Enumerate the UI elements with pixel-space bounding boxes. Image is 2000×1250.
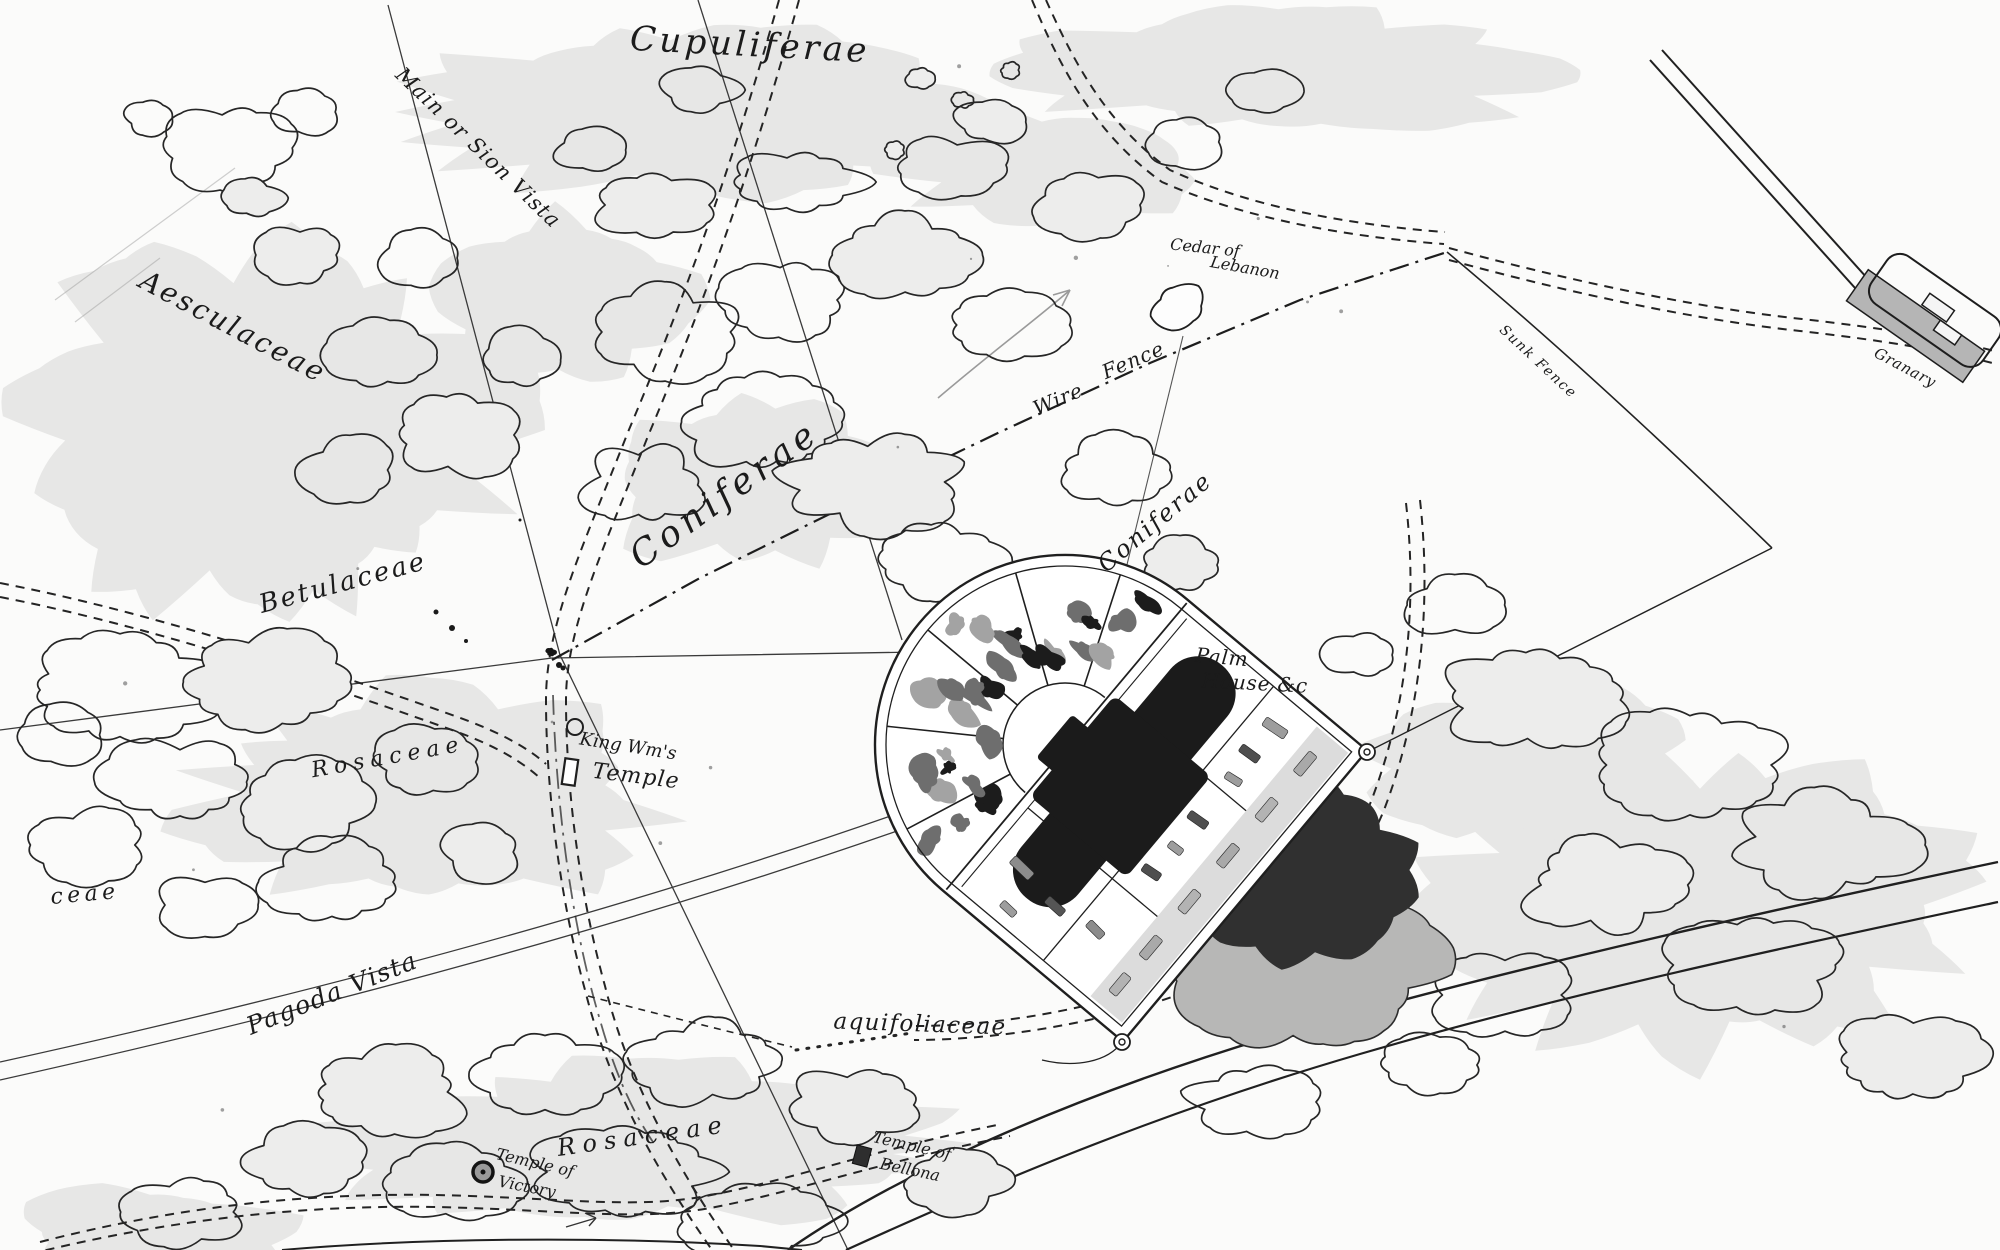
- cedar-of-lebanon-tree: [1151, 284, 1203, 330]
- ink-specks-shape: [970, 258, 972, 260]
- map-drawing: [0, 0, 2000, 1250]
- watercolor-washes-shape: [989, 5, 1580, 131]
- tree-clumps-shape: [28, 806, 142, 887]
- ink-specks-shape: [192, 868, 195, 871]
- tree-clumps-shape: [829, 210, 983, 298]
- ink-specks-shape: [658, 841, 662, 845]
- gate-pier-south-shape: [1114, 1034, 1130, 1050]
- tree-clumps-shape: [159, 878, 258, 939]
- tree-clumps-shape: [1061, 430, 1172, 506]
- ink-specks-shape: [1074, 256, 1078, 260]
- dotted-path: [796, 1033, 912, 1050]
- gate-pier-east: [1359, 744, 1375, 760]
- gate-pier-south: [1114, 1034, 1130, 1050]
- tree-clumps-shape: [952, 288, 1072, 361]
- temple-of-victory-marker-shape: [481, 1170, 486, 1175]
- king-wms-temple-marker: [562, 758, 578, 786]
- tree-clumps-shape: [1381, 1032, 1480, 1095]
- ink-specks-shape: [1167, 265, 1169, 267]
- tree-clumps-shape: [17, 702, 101, 766]
- ink-specks-shape: [1782, 1025, 1785, 1028]
- tree-clumps-shape: [1181, 1065, 1321, 1138]
- ink-specks-shape: [1306, 300, 1309, 303]
- ink-specks-shape: [449, 625, 455, 631]
- tree-clumps-shape: [318, 1044, 466, 1138]
- gate-pier-east-shape: [1359, 744, 1375, 760]
- ink-specks-shape: [709, 766, 712, 769]
- ink-specks-shape: [1257, 217, 1260, 220]
- tree-clumps-shape: [1404, 574, 1506, 634]
- tree-clumps-shape: [163, 108, 297, 193]
- watercolor-washes-shape: [24, 1183, 304, 1250]
- tree-clumps-shape: [271, 88, 337, 136]
- boundary-line: [1042, 1042, 1122, 1063]
- tree-clumps-shape: [124, 100, 173, 136]
- ink-specks-shape: [1339, 309, 1343, 313]
- ink-specks-shape: [123, 681, 127, 685]
- tree-clumps-shape: [240, 1121, 366, 1198]
- ink-specks-shape: [356, 567, 359, 570]
- tree-clumps-shape: [221, 178, 288, 217]
- bottom-road: [282, 1240, 802, 1250]
- ink-specks-shape: [434, 610, 439, 615]
- tree-clumps-shape: [1320, 633, 1393, 676]
- temple-of-victory-marker: [473, 1162, 493, 1182]
- ink-specks-shape: [897, 446, 900, 449]
- ink-specks-shape: [561, 666, 566, 671]
- arrow-shaft: [938, 290, 1070, 398]
- sunk-fence-line: [1447, 252, 1772, 548]
- cedar-of-lebanon-tree-shape: [1151, 284, 1203, 330]
- tree-clumps-shape: [885, 141, 904, 159]
- ink-specks-shape: [519, 519, 522, 522]
- pencil-arrow: [938, 290, 1070, 398]
- ink-specks-shape: [551, 721, 554, 724]
- granary-building: [1846, 242, 2000, 385]
- tree-clumps-shape: [904, 1148, 1015, 1218]
- tree-clumps-shape: [595, 173, 715, 238]
- tree-clumps-shape: [399, 394, 519, 479]
- tree-clumps-shape: [715, 263, 844, 342]
- fence-gate-ink-shape: [545, 648, 557, 657]
- king-wms-temple-marker-shape: [562, 758, 578, 786]
- tree-clumps-shape: [905, 68, 935, 89]
- historic-garden-map: CupuliferaeMain or Sion VistaAesculaceae…: [0, 0, 2000, 1250]
- ink-specks-shape: [957, 64, 961, 68]
- ink-specks-shape: [221, 1108, 225, 1112]
- tree-clumps-shape: [1839, 1015, 1993, 1099]
- ink-specks-shape: [464, 639, 468, 643]
